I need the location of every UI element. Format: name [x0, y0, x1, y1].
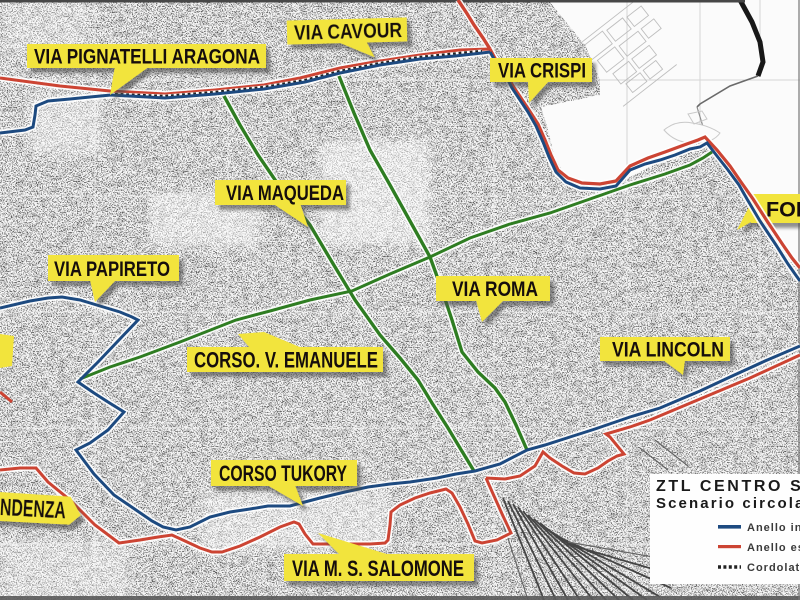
- svg-text:VIA LINCOLN: VIA LINCOLN: [612, 338, 724, 362]
- svg-text:NDENZA: NDENZA: [0, 494, 67, 524]
- svg-text:Anello interno: Anello interno: [747, 522, 800, 534]
- svg-text:VIA PAPIRETO: VIA PAPIRETO: [54, 257, 170, 281]
- svg-text:Scenario circolazione: Scenario circolazione: [656, 495, 800, 512]
- svg-text:VIA MAQUEDA: VIA MAQUEDA: [226, 181, 344, 205]
- svg-text:VIA CRISPI: VIA CRISPI: [498, 59, 586, 83]
- svg-text:VIA CAVOUR: VIA CAVOUR: [294, 18, 403, 45]
- svg-text:FOR: FOR: [766, 198, 800, 222]
- svg-text:Anello esterno: Anello esterno: [747, 542, 800, 554]
- svg-text:ZTL CENTRO STORICO: ZTL CENTRO STORICO: [656, 478, 800, 495]
- svg-text:VIA M. S. SALOMONE: VIA M. S. SALOMONE: [292, 556, 464, 581]
- svg-text:CORSO TUKORY: CORSO TUKORY: [219, 461, 347, 486]
- svg-text:VIA ROMA: VIA ROMA: [452, 277, 538, 301]
- svg-text:CORSO. V. EMANUELE: CORSO. V. EMANUELE: [194, 348, 378, 373]
- svg-text:Cordolatura: Cordolatura: [747, 562, 800, 574]
- svg-text:VIA PIGNATELLI ARAGONA: VIA PIGNATELLI ARAGONA: [34, 45, 260, 69]
